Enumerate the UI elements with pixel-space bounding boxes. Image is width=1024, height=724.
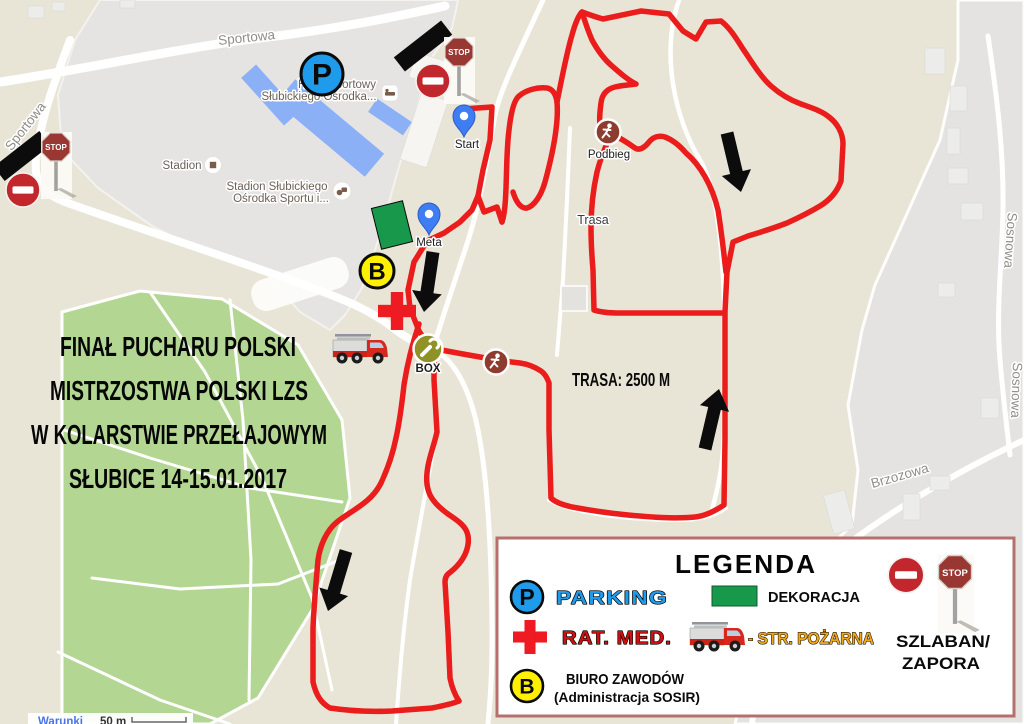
map-footer-bar: Warunki 50 m — [28, 713, 193, 724]
scale-label: 50 m — [100, 716, 126, 724]
start-label: Start — [455, 139, 480, 151]
legend: LEGENDA P PARKING DEKORACJA STOP RAT. ME… — [497, 538, 1014, 716]
parking-marker[interactable]: P — [301, 53, 343, 95]
legend-biuro-line-2: (Administracja SOSIR) — [554, 689, 700, 705]
no-entry-icon-left — [6, 173, 40, 207]
poi-stadion-full-2: Ośrodka Sportu i... — [233, 193, 329, 205]
podbieg-label: Podbieg — [588, 149, 630, 161]
stadium-icon[interactable] — [205, 157, 222, 174]
box-label: BOX — [416, 363, 441, 375]
event-title-line-2: MISTRZOSTWA POLSKI LZS — [50, 375, 308, 406]
legend-stop-icon: STOP — [937, 554, 979, 633]
sports-center-icon[interactable] — [333, 182, 351, 200]
legend-biuro-icon: B — [511, 670, 543, 702]
podbieg-runner-marker[interactable] — [596, 120, 621, 145]
legend-parking-label: PARKING — [556, 588, 668, 608]
legend-dekoracja-swatch — [712, 586, 757, 606]
legend-parking-letter: P — [519, 584, 534, 610]
legend-biuro-letter: B — [519, 676, 534, 699]
poi-stadion-full-1: Stadion Słubickiego — [226, 181, 327, 193]
poi-stadion-label: Stadion — [162, 160, 201, 172]
legend-title: LEGENDA — [675, 549, 817, 579]
terms-link[interactable]: Warunki — [38, 716, 83, 724]
event-title-line-1: FINAŁ PUCHARU POLSKI — [60, 331, 296, 362]
course-distance: TRASA: 2500 M — [572, 370, 670, 390]
event-title-line-3: W KOLARSTWIE PRZEŁAJOWYM — [31, 419, 327, 450]
hotel-bed-icon[interactable] — [382, 85, 398, 101]
event-title-line-4: SŁUBICE 14-15.01.2017 — [69, 463, 287, 494]
legend-no-entry-icon — [888, 557, 924, 593]
legend-dekoracja-label: DEKORACJA — [768, 589, 860, 606]
legend-rat-med-label: RAT. MED. — [562, 628, 672, 648]
trasa-label: Trasa — [577, 213, 609, 227]
runner-marker-2[interactable] — [484, 350, 509, 375]
stop-sign-text-left: STOP — [45, 143, 67, 152]
meta-label: Meta — [416, 237, 442, 249]
parking-marker-letter: P — [312, 59, 332, 92]
box-marker[interactable] — [414, 335, 443, 364]
legend-parking-icon: P — [511, 581, 543, 613]
mid-building — [561, 286, 587, 311]
stop-sign-text-top: STOP — [448, 48, 470, 57]
no-entry-icon-top — [416, 64, 450, 98]
biuro-marker[interactable]: B — [360, 254, 394, 288]
legend-biuro-line-1: BIURO ZAWODÓW — [566, 670, 685, 688]
biuro-marker-letter: B — [368, 259, 385, 286]
legend-szlaban-line-1: SZLABAN/ — [896, 632, 990, 651]
street-sosnowa-2: Sosnowa — [1008, 362, 1024, 419]
course-map: Sportowa Sportowa Sosnowa Sosnowa Brzozo… — [0, 0, 1024, 724]
legend-stop-text: STOP — [942, 568, 968, 579]
race-map-poster: Sportowa Sportowa Sosnowa Sosnowa Brzozo… — [0, 0, 1024, 724]
legend-szlaban-line-2: ZAPORA — [902, 654, 980, 673]
legend-str-pozarna-label: - STR. POŻARNA — [748, 629, 874, 648]
